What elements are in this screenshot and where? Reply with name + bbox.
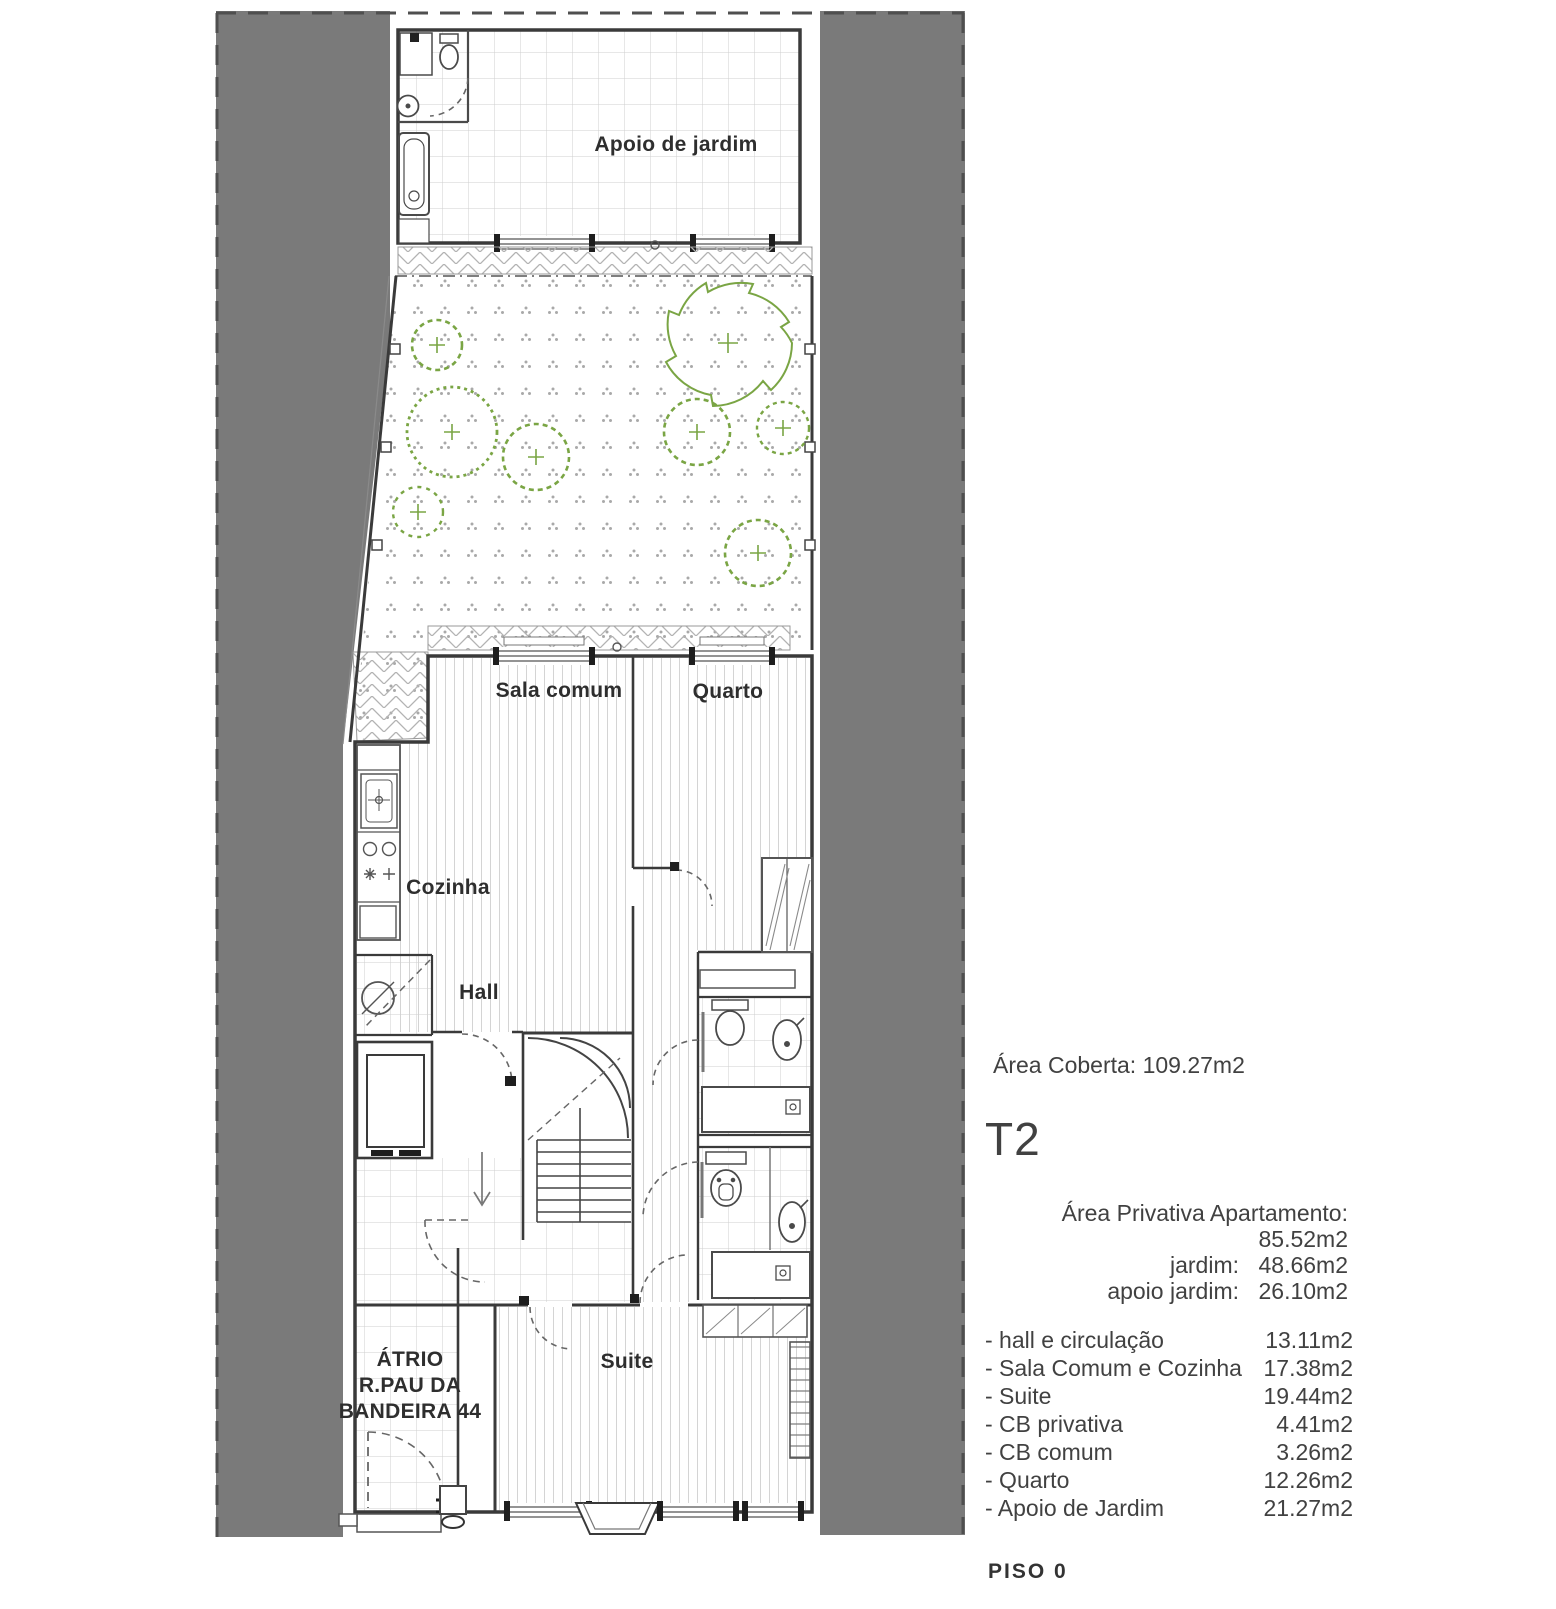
radiator bbox=[790, 1342, 810, 1458]
room-area-row: - Suite19.44m2 bbox=[985, 1382, 1353, 1410]
room-label-suite: Suite bbox=[601, 1350, 654, 1373]
private-area-line: Área Privativa Apartamento:85.52m2 bbox=[980, 1200, 1348, 1252]
svg-text:ÁTRIO: ÁTRIO bbox=[377, 1348, 444, 1371]
room-area-row: - Sala Comum e Cozinha17.38m2 bbox=[985, 1354, 1353, 1382]
private-areas-block: Área Privativa Apartamento:85.52m2 jardi… bbox=[980, 1200, 1348, 1304]
toilet-cistern bbox=[440, 34, 458, 43]
garden-path-top bbox=[398, 247, 812, 274]
svg-text:R.PAU DA: R.PAU DA bbox=[359, 1374, 461, 1397]
floor-plan-sheet: Apoio de jardim bbox=[0, 0, 1556, 1609]
room-label-apoio: Apoio de jardim bbox=[594, 133, 757, 156]
garden-path-left bbox=[353, 652, 428, 741]
toilet-cistern bbox=[712, 1000, 748, 1010]
room-label-quarto: Quarto bbox=[693, 680, 764, 703]
right-neighbour-band bbox=[820, 11, 965, 1535]
entrance-step bbox=[357, 1514, 441, 1532]
room-label-hall: Hall bbox=[459, 981, 499, 1004]
floor-label: PISO 0 bbox=[988, 1560, 1068, 1584]
room-area-row: - hall e circulação13.11m2 bbox=[985, 1326, 1353, 1354]
shelf bbox=[700, 970, 795, 988]
toilet-cistern bbox=[706, 1152, 746, 1164]
private-area-line: jardim:48.66m2 bbox=[980, 1252, 1348, 1278]
unit-type-label: T2 bbox=[985, 1112, 1041, 1166]
room-area-row: - CB privativa4.41m2 bbox=[985, 1410, 1353, 1438]
room-areas-list: - hall e circulação13.11m2 - Sala Comum … bbox=[985, 1326, 1353, 1522]
elevator bbox=[357, 1042, 432, 1158]
bathtub-icon bbox=[712, 1252, 810, 1298]
toilet-icon bbox=[716, 1011, 744, 1045]
room-label-sala: Sala comum bbox=[496, 679, 623, 702]
room-label-cozinha: Cozinha bbox=[406, 876, 490, 899]
private-area-line: apoio jardim:26.10m2 bbox=[980, 1278, 1348, 1304]
room-area-row: - Quarto12.26m2 bbox=[985, 1466, 1353, 1494]
apartment-building: Sala comum Quarto Cozinha Hall Suite ÁTR… bbox=[339, 637, 812, 1534]
room-area-row: - Apoio de Jardim21.27m2 bbox=[985, 1494, 1353, 1522]
room-area-row: - CB comum3.26m2 bbox=[985, 1438, 1353, 1466]
area-coberta-text: Área Coberta: 109.27m2 bbox=[993, 1052, 1245, 1079]
svg-text:BANDEIRA 44: BANDEIRA 44 bbox=[339, 1400, 482, 1423]
entrance-pillar bbox=[440, 1486, 466, 1514]
apoio-building: Apoio de jardim bbox=[398, 30, 801, 252]
toilet-icon bbox=[440, 45, 458, 69]
kitchen bbox=[357, 745, 400, 940]
